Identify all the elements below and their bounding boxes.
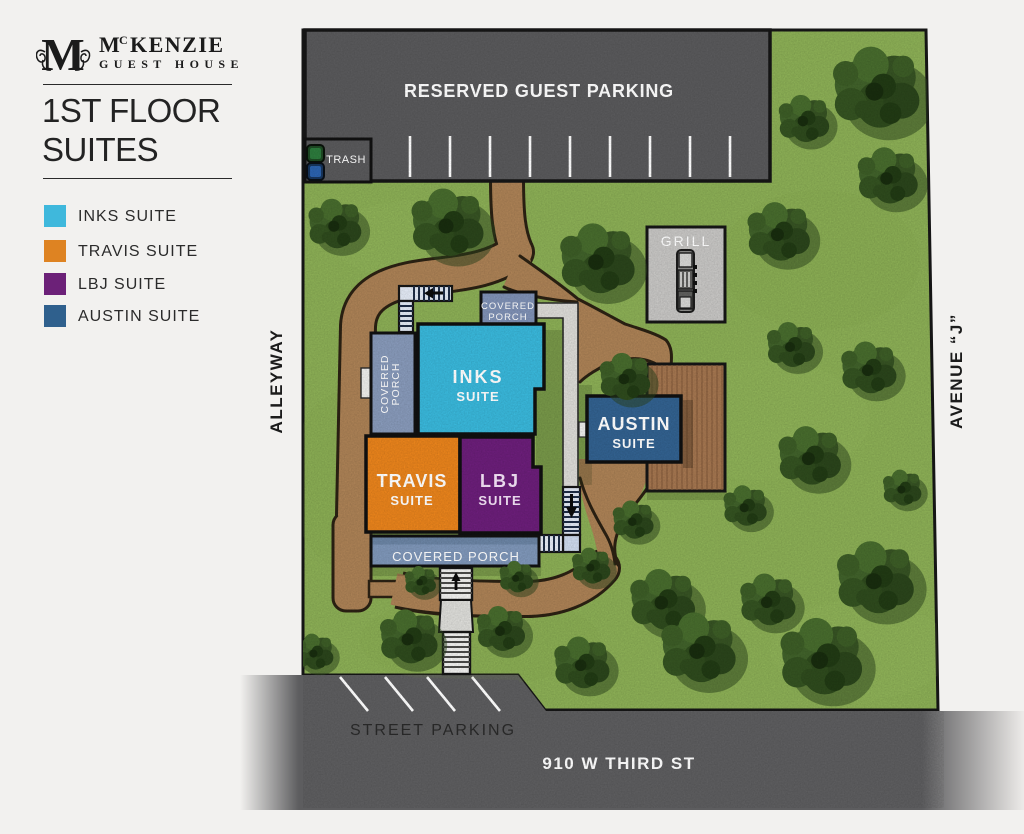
svg-text:AVENUE “J”: AVENUE “J” xyxy=(947,313,966,429)
svg-text:KENZIE: KENZIE xyxy=(130,32,225,57)
svg-text:GUEST HOUSE: GUEST HOUSE xyxy=(99,57,244,71)
svg-text:C: C xyxy=(119,33,128,47)
svg-text:ALLEYWAY: ALLEYWAY xyxy=(267,329,286,434)
svg-text:M: M xyxy=(99,32,120,57)
